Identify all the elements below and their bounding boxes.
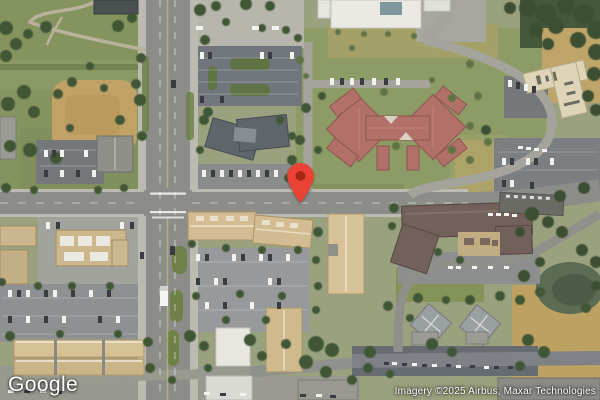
- building-white-top: [331, 0, 421, 28]
- google-logo[interactable]: Google: [8, 374, 78, 395]
- map-viewport[interactable]: Google Imagery ©2025 Airbus, Maxar Techn…: [0, 0, 600, 400]
- building-strip-mall: [56, 230, 128, 266]
- imagery-attribution: Imagery ©2025 Airbus, Maxar Technologies: [395, 386, 596, 397]
- building-white-south: [216, 328, 250, 366]
- building-top-left-dark: [94, 0, 138, 14]
- building-left-edge: [0, 117, 16, 159]
- south-road: [352, 358, 600, 361]
- map-marker[interactable]: [287, 163, 314, 203]
- map-marker-body: [287, 163, 314, 203]
- building-rows-southwest: [14, 340, 144, 375]
- truck-on-road: [160, 286, 168, 306]
- map-marker-dot: [296, 171, 306, 181]
- building-bottom-white: [206, 376, 252, 400]
